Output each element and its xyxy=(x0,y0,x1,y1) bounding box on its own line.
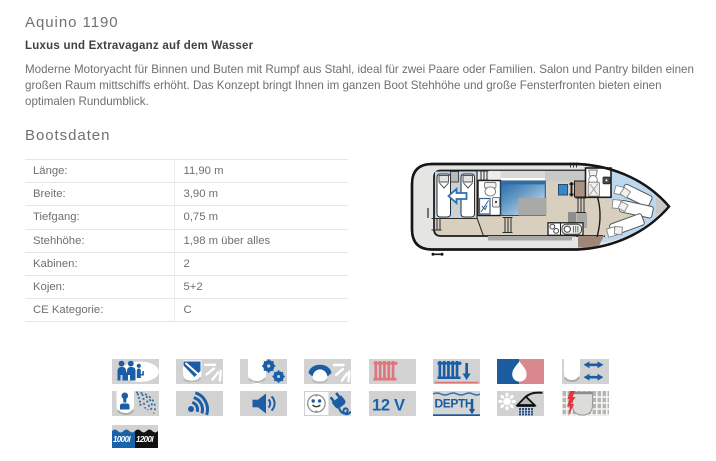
svg-text:12 V: 12 V xyxy=(372,397,405,415)
svg-text:DEPTH: DEPTH xyxy=(435,396,474,410)
svg-text:1200l: 1200l xyxy=(136,435,154,444)
svg-text:1000l: 1000l xyxy=(113,435,131,444)
